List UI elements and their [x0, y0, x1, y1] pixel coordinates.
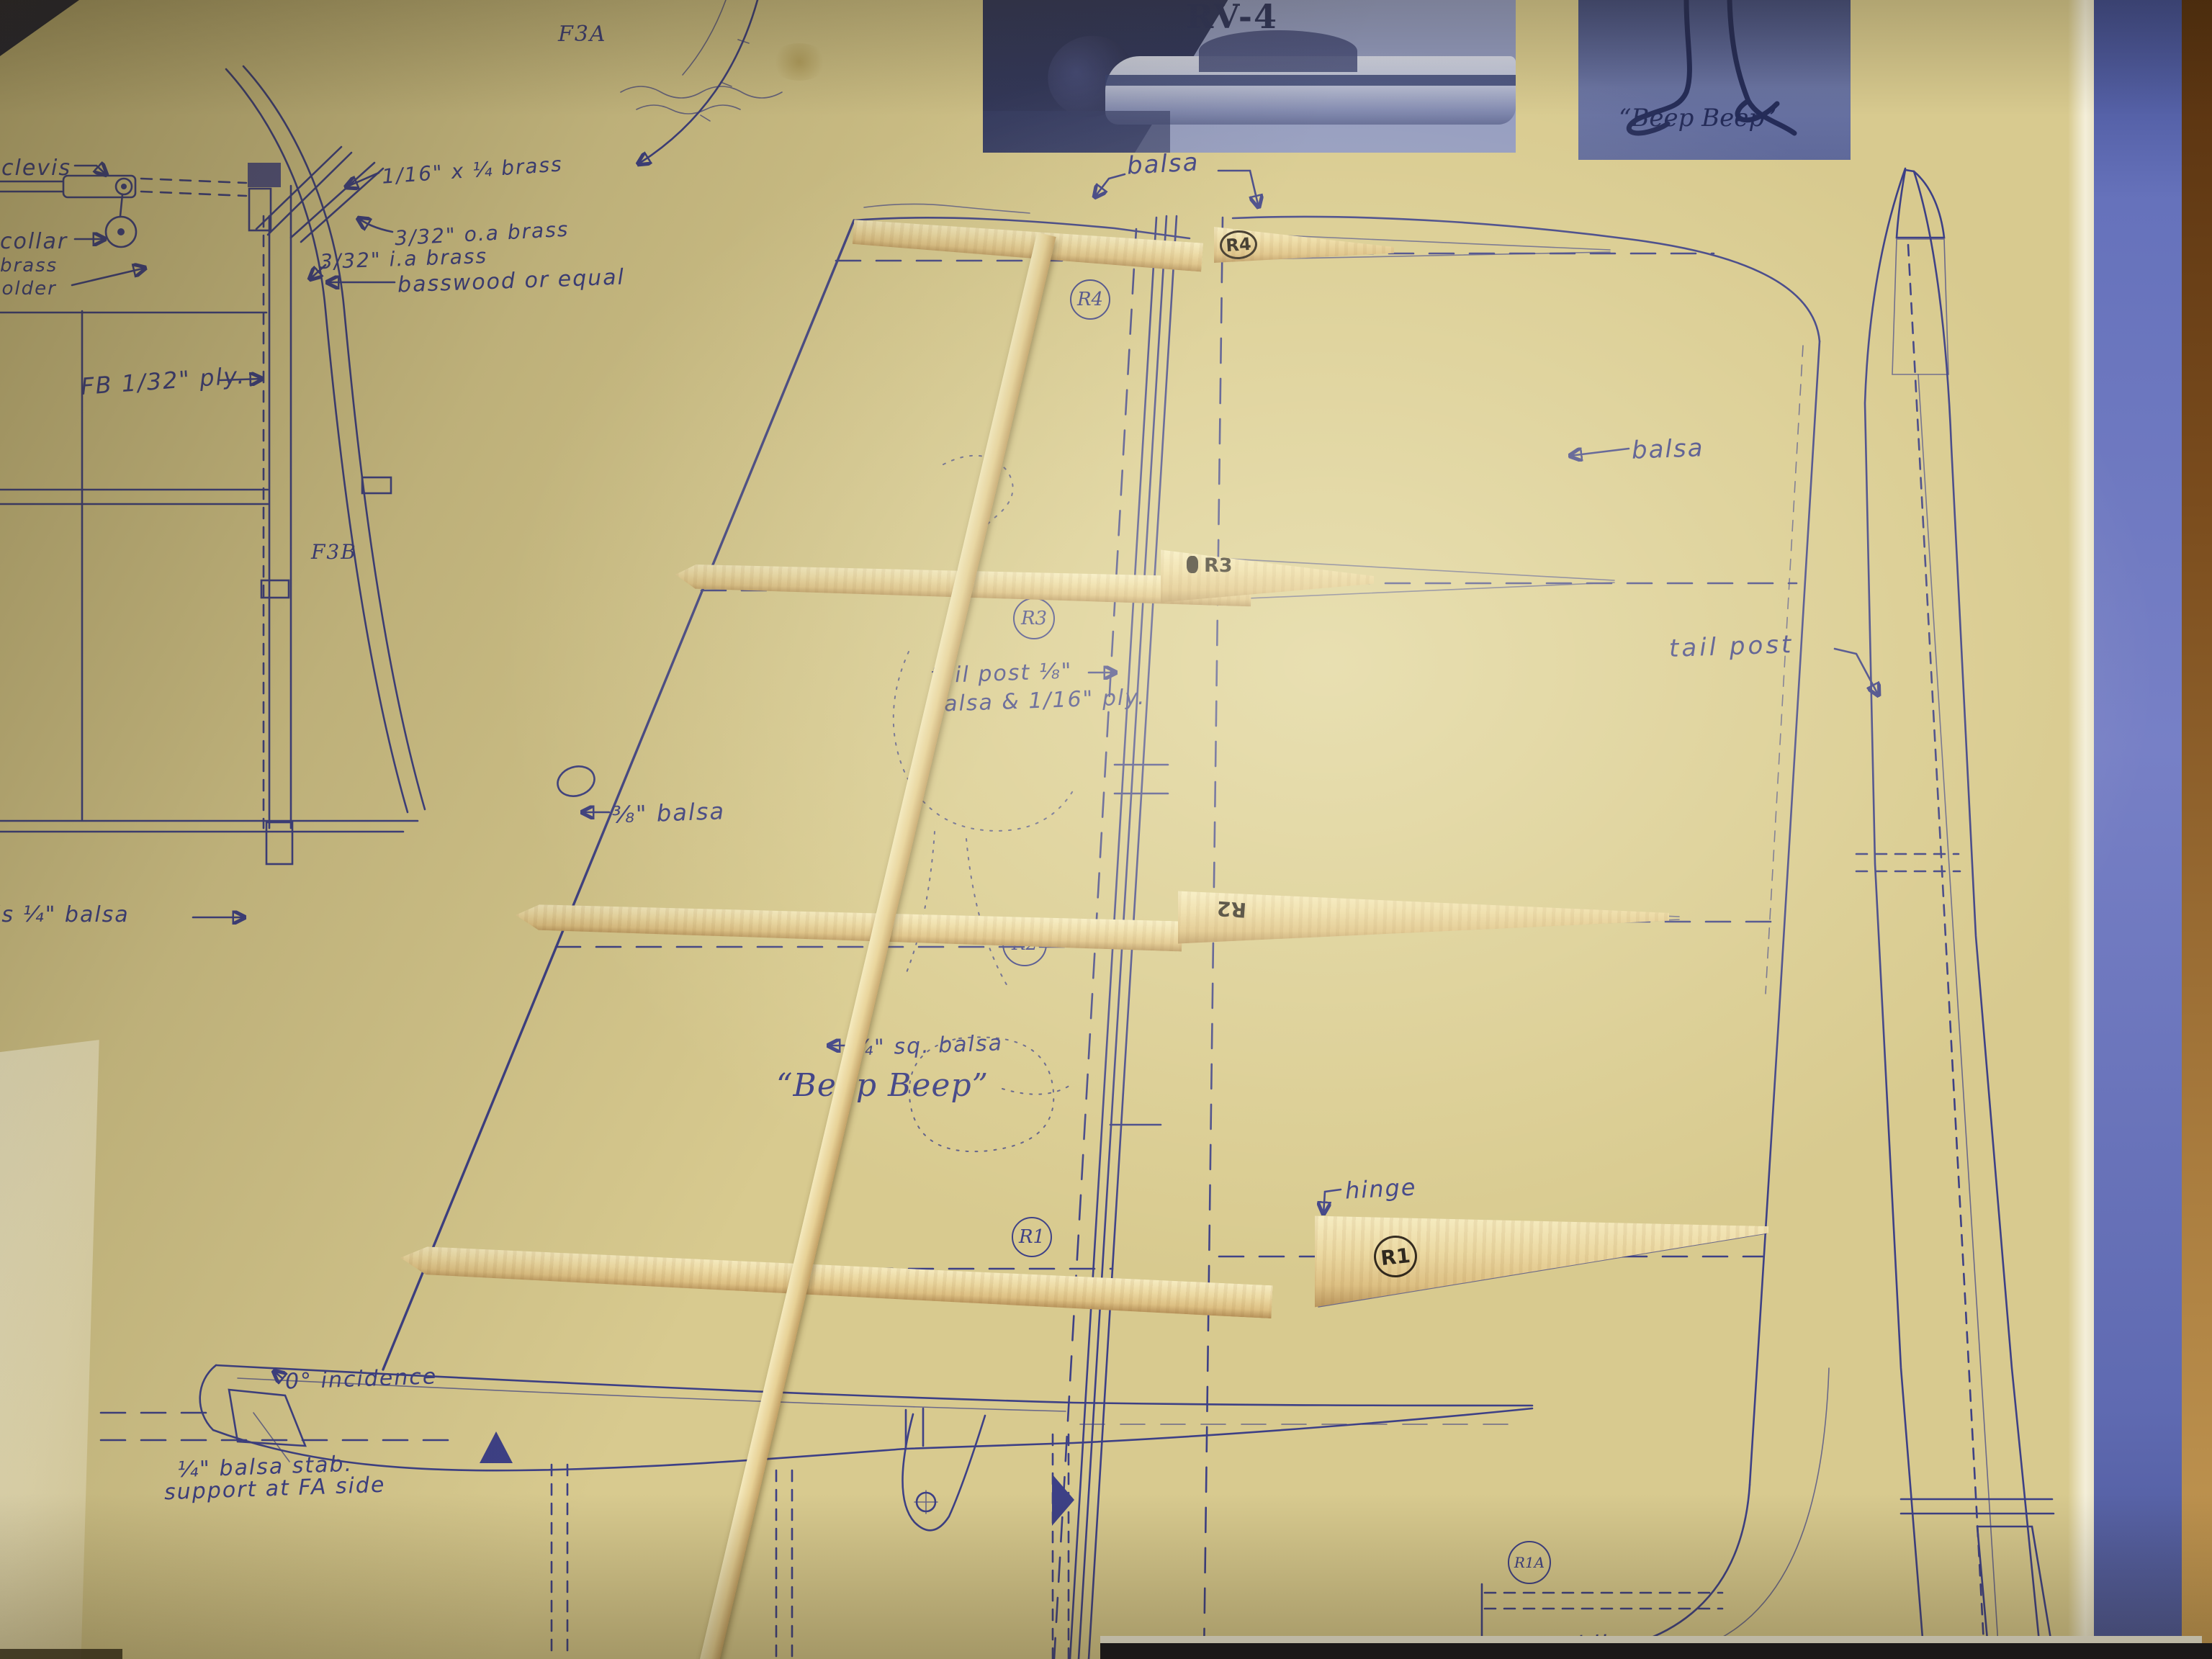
- table-edge-brown: [2182, 0, 2212, 1659]
- rib-callout-r3: R3: [1013, 598, 1055, 639]
- paper-stain: [770, 43, 828, 81]
- table-shadow-bar: [1100, 1643, 2212, 1659]
- paper-edge-highlight: [2068, 0, 2097, 1659]
- label-tail-post: tail post: [1668, 630, 1794, 663]
- roadrunner-legs-drawing: [1578, 0, 1851, 160]
- photo-rv4-plane: RV-4: [983, 0, 1516, 153]
- label-le-balsa: ⅜" balsa: [611, 797, 725, 828]
- blue-border-band: [2094, 0, 2182, 1659]
- wedge-ink-blob: [1187, 556, 1198, 573]
- wedge-marker-r4: R4: [1219, 229, 1259, 261]
- label-clevis: clevis: [1, 156, 71, 181]
- label-incidence: 0° incidence: [284, 1364, 437, 1394]
- wedge-marker-r2: R2: [1216, 896, 1247, 922]
- label-collar: collar: [0, 229, 68, 254]
- photo-roadrunner: “Beep Beep”: [1578, 0, 1851, 160]
- label-fuselage-side-balsa: is ¼" balsa: [0, 902, 130, 927]
- label-f3b: F3B: [311, 540, 357, 564]
- label-hinge: hinge: [1344, 1173, 1417, 1204]
- label-sq-balsa: ¼" sq. balsa: [851, 1030, 1003, 1061]
- pushrod-clevis-detail: [0, 0, 782, 864]
- label-brass-holder-1: brass: [0, 255, 58, 276]
- photo-tint: [983, 0, 1516, 153]
- wedge-marker-r1: R1: [1372, 1233, 1419, 1280]
- stab-side-view-lines: [101, 1365, 1532, 1659]
- rib-callout-r1: R1: [1012, 1217, 1052, 1257]
- label-beep-beep-script: “Beep Beep”: [776, 1067, 989, 1104]
- photo-caption-beep-beep: “Beep Beep”: [1619, 104, 1777, 132]
- fin-side-profile-lines: [1856, 168, 2054, 1656]
- rib-callout-r4: R4: [1070, 279, 1110, 320]
- label-f3a: F3A: [558, 22, 607, 47]
- rib-callout-r1a: R1A: [1508, 1541, 1551, 1584]
- label-balsa-top: balsa: [1126, 148, 1200, 180]
- bottom-left-shadow: [0, 1649, 122, 1659]
- label-balsa-side: balsa: [1631, 433, 1704, 464]
- label-brass-holder-2: holder: [0, 278, 57, 300]
- blueprint-photo-scene: clevis collar brass holder 1/16" x ¼ bra…: [0, 0, 2212, 1659]
